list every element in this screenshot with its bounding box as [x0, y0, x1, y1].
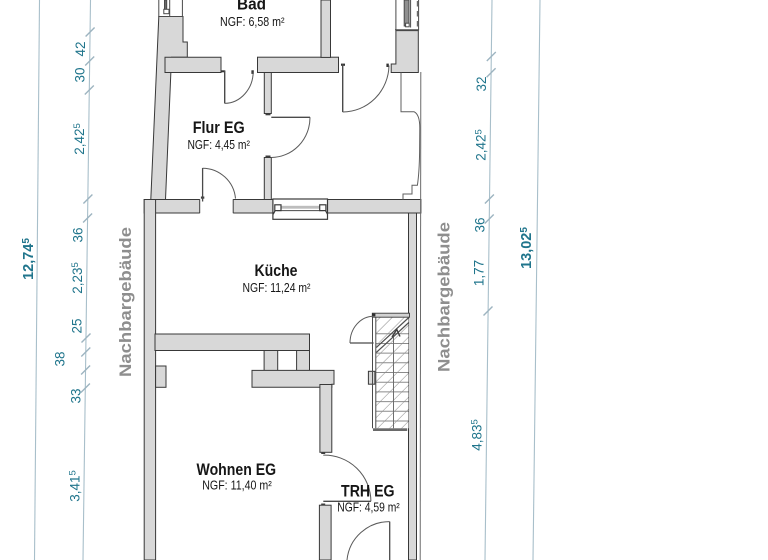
svg-text:38: 38 — [53, 351, 68, 366]
svg-text:Wohnen EG: Wohnen EG — [197, 460, 277, 479]
svg-text:12,745: 12,745 — [21, 238, 37, 280]
svg-text:NGF: 4,45 m²: NGF: 4,45 m² — [187, 137, 250, 152]
svg-text:42: 42 — [73, 41, 88, 56]
svg-text:32: 32 — [474, 76, 489, 91]
svg-text:TRH EG: TRH EG — [341, 482, 395, 501]
svg-text:25: 25 — [69, 318, 84, 333]
svg-text:NGF: 4,59 m²: NGF: 4,59 m² — [337, 500, 400, 515]
svg-text:Küche: Küche — [255, 261, 298, 280]
svg-text:Flur EG: Flur EG — [193, 118, 245, 137]
svg-text:3,415: 3,415 — [68, 470, 83, 502]
svg-text:Nachbargebäude: Nachbargebäude — [116, 227, 135, 377]
svg-text:36: 36 — [71, 227, 86, 242]
svg-text:NGF: 11,24 m²: NGF: 11,24 m² — [243, 280, 312, 295]
svg-text:30: 30 — [73, 67, 88, 82]
svg-text:Nachbargebäude: Nachbargebäude — [435, 222, 454, 372]
svg-text:NGF: 11,40 m²: NGF: 11,40 m² — [202, 478, 272, 493]
svg-text:NGF: 6,58 m²: NGF: 6,58 m² — [220, 14, 285, 29]
svg-text:1,77: 1,77 — [472, 260, 487, 286]
svg-text:2,425: 2,425 — [473, 129, 488, 161]
svg-text:13,025: 13,025 — [519, 227, 535, 269]
svg-text:36: 36 — [472, 217, 487, 232]
svg-text:Bad: Bad — [237, 0, 266, 14]
svg-text:2,425: 2,425 — [72, 123, 87, 155]
svg-text:4,835: 4,835 — [470, 419, 485, 451]
svg-text:2,235: 2,235 — [70, 262, 85, 294]
svg-text:33: 33 — [69, 388, 84, 403]
